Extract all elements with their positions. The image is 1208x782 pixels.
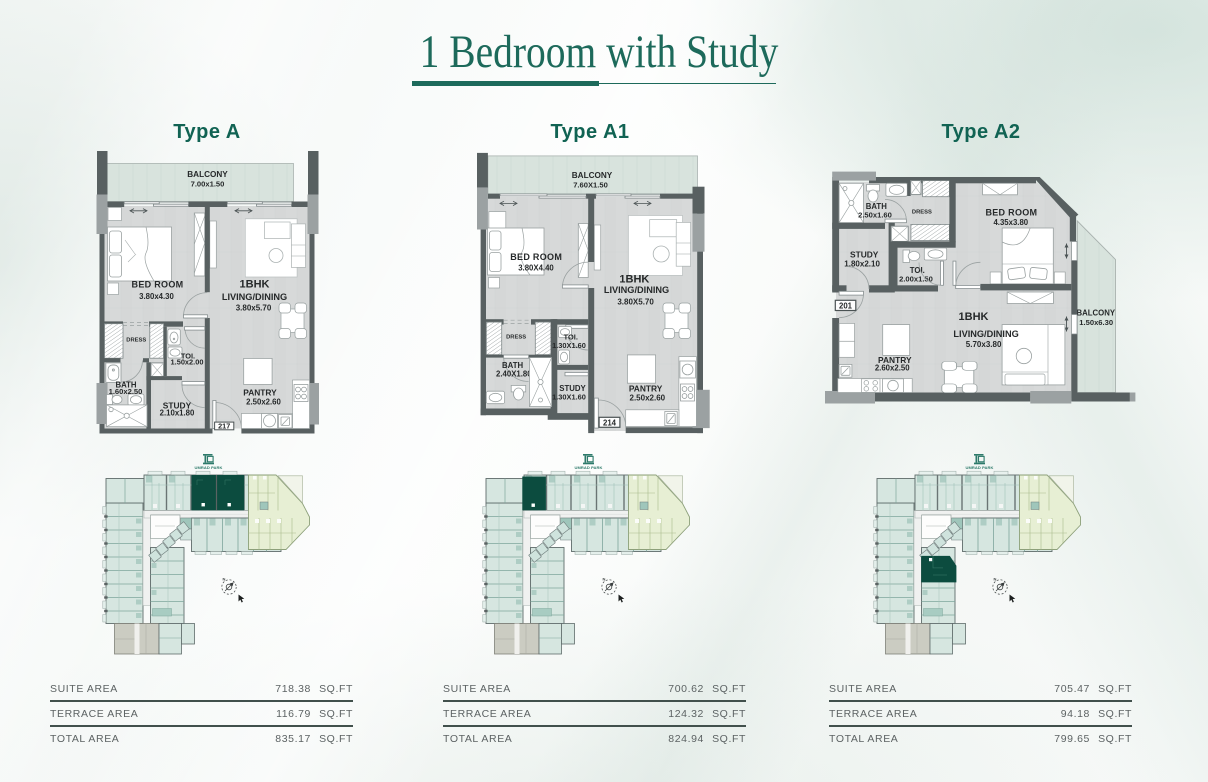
svg-text:BALCONY: BALCONY — [1077, 309, 1116, 318]
svg-text:BED ROOM: BED ROOM — [985, 207, 1037, 217]
svg-text:1.80x2.10: 1.80x2.10 — [844, 260, 880, 269]
svg-text:2.50x1.60: 2.50x1.60 — [858, 210, 892, 219]
svg-text:1.50x2.00: 1.50x2.00 — [171, 358, 204, 367]
svg-text:BALCONY: BALCONY — [187, 170, 228, 179]
svg-text:BED ROOM: BED ROOM — [510, 252, 562, 262]
svg-text:2.40X1.80: 2.40X1.80 — [496, 369, 532, 378]
svg-text:7.00x1.50: 7.00x1.50 — [191, 180, 225, 189]
svg-text:1.30X1.60: 1.30X1.60 — [552, 341, 586, 350]
svg-text:DRESS: DRESS — [912, 209, 932, 215]
svg-text:BED ROOM: BED ROOM — [132, 280, 184, 290]
svg-text:STUDY: STUDY — [850, 250, 879, 260]
svg-text:1BHK: 1BHK — [959, 311, 989, 323]
svg-text:LIVING/DINING: LIVING/DINING — [604, 285, 669, 295]
svg-text:2.50x2.60: 2.50x2.60 — [630, 393, 666, 402]
svg-text:3.80X4.40: 3.80X4.40 — [518, 264, 554, 273]
svg-text:3.80x4.30: 3.80x4.30 — [139, 292, 174, 301]
svg-text:2.10x1.80: 2.10x1.80 — [160, 409, 195, 418]
svg-text:1BHK: 1BHK — [240, 279, 270, 291]
svg-text:DRESS: DRESS — [506, 335, 526, 341]
svg-text:LIVING/DINING: LIVING/DINING — [953, 329, 1018, 339]
svg-text:3.80X5.70: 3.80X5.70 — [617, 298, 654, 307]
svg-text:5.70x3.80: 5.70x3.80 — [966, 340, 1002, 349]
svg-text:2.50x2.60: 2.50x2.60 — [246, 398, 281, 407]
svg-text:2.00x1.50: 2.00x1.50 — [899, 274, 933, 283]
svg-text:2.60x2.50: 2.60x2.50 — [875, 364, 910, 373]
svg-text:214: 214 — [603, 418, 617, 427]
svg-text:1.50x6.30: 1.50x6.30 — [1079, 318, 1113, 327]
svg-text:1.30X1.60: 1.30X1.60 — [552, 392, 586, 401]
svg-text:217: 217 — [218, 421, 230, 430]
svg-text:BALCONY: BALCONY — [572, 171, 613, 180]
svg-text:PANTRY: PANTRY — [629, 383, 663, 393]
svg-text:1BHK: 1BHK — [619, 274, 649, 286]
svg-text:LIVING/DINING: LIVING/DINING — [222, 292, 287, 302]
svg-text:201: 201 — [839, 302, 853, 311]
svg-text:3.80x5.70: 3.80x5.70 — [236, 304, 272, 313]
svg-text:4.35x3.80: 4.35x3.80 — [993, 218, 1028, 227]
svg-text:1.60x2.50: 1.60x2.50 — [109, 387, 143, 396]
svg-text:7.60X1.50: 7.60X1.50 — [573, 180, 608, 189]
svg-text:PANTRY: PANTRY — [243, 387, 277, 397]
svg-text:DRESS: DRESS — [126, 338, 146, 344]
